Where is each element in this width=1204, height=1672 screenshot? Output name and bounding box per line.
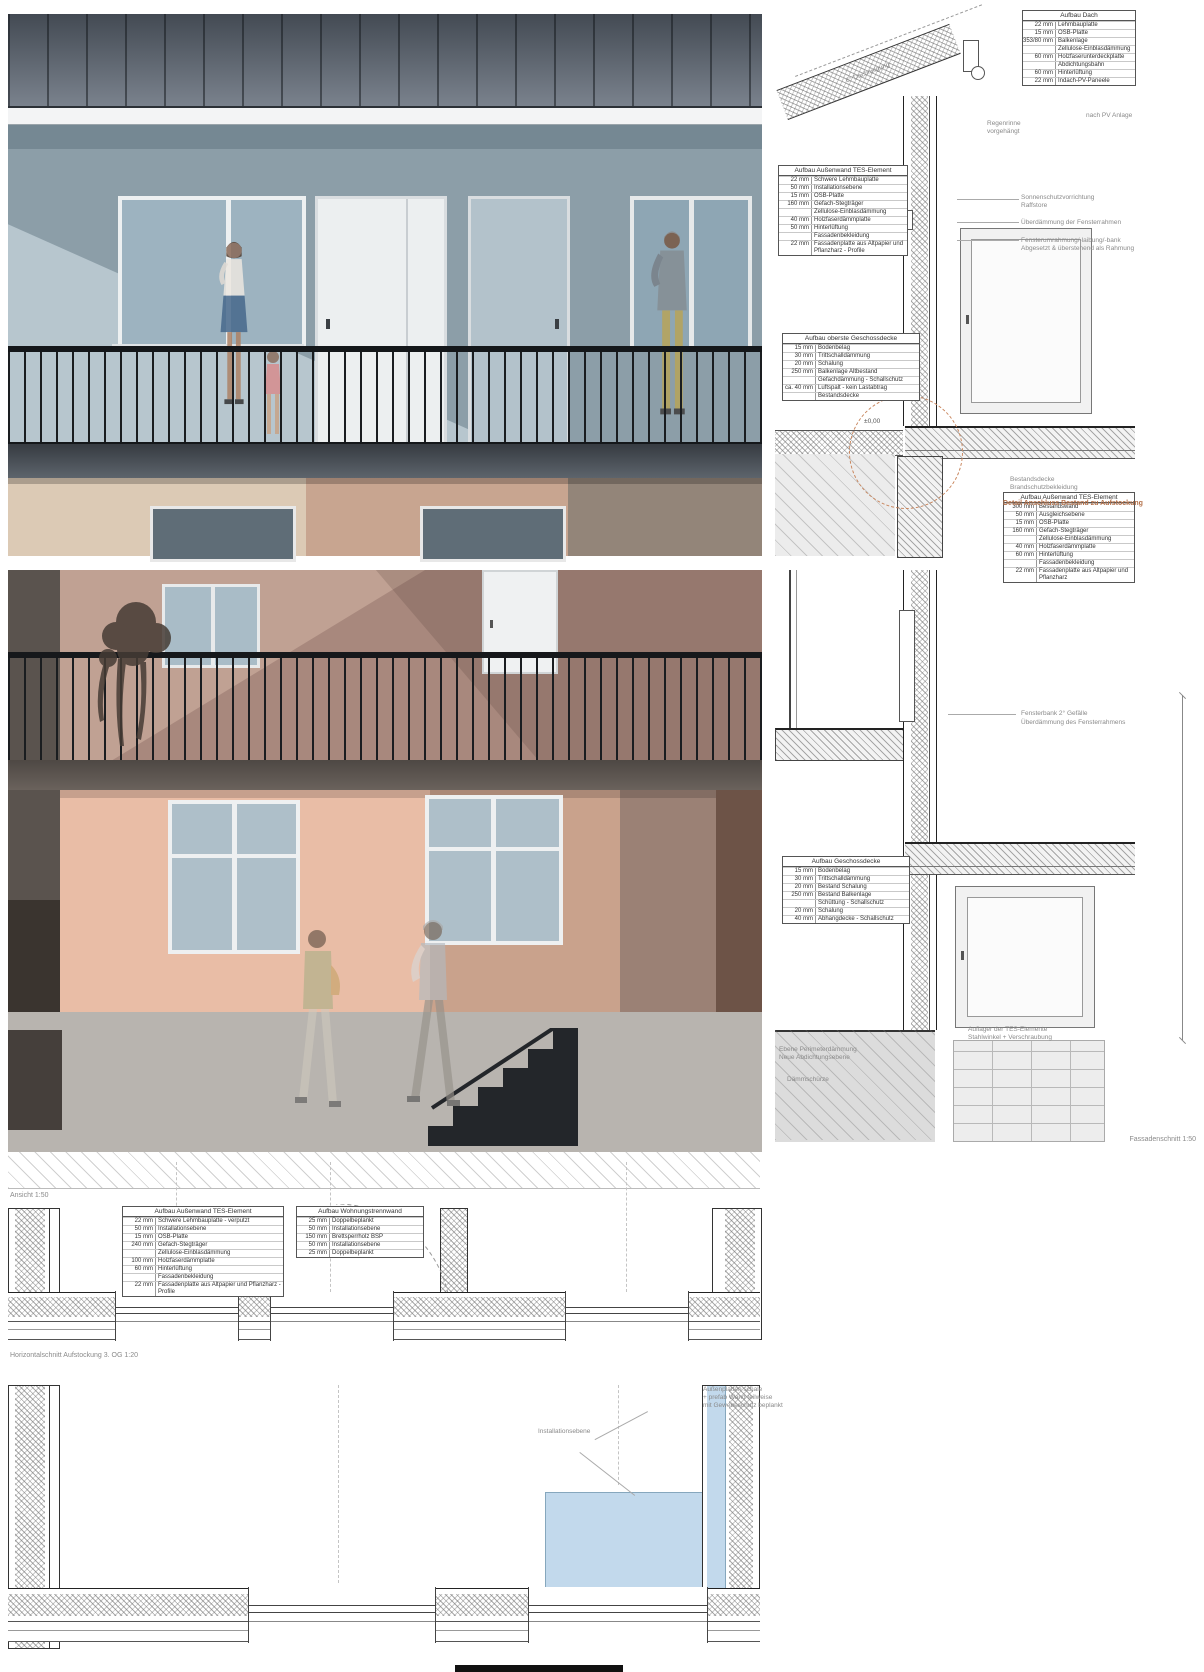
table-row: Zellulose-Einblasdämmung bbox=[1023, 45, 1135, 53]
facade-wall-below bbox=[8, 478, 762, 556]
table-row: 160 mmGefach-Stegträger bbox=[779, 200, 907, 208]
table-row: 20 mmSchalung bbox=[783, 360, 919, 368]
outer-panel-label-1: Außenplatten schale bbox=[703, 1386, 762, 1394]
table-title: Aufbau Dach bbox=[1023, 11, 1135, 21]
table-row: 15 mmOSB-Platte bbox=[1004, 519, 1134, 527]
plan-wall-strip bbox=[8, 1588, 760, 1642]
dark-door-right bbox=[716, 790, 762, 1012]
table-title: Aufbau Geschossdecke bbox=[783, 857, 909, 867]
window-handle bbox=[966, 315, 969, 324]
plan-window bbox=[270, 1291, 394, 1341]
plinth bbox=[8, 1012, 762, 1152]
window-surround-label-2: Abgesetzt & überstehend als Rahmung bbox=[1021, 245, 1134, 253]
caption-ansicht: Ansicht 1:50 bbox=[10, 1192, 49, 1199]
table-row: 40 mmHolzfaserdämmplatte bbox=[1004, 543, 1134, 551]
table-row: Schüttung - Schallschutz bbox=[783, 899, 909, 907]
outer-panel-label-3: mit Gewebeschutz beplankt bbox=[703, 1402, 783, 1410]
balcony-slab bbox=[8, 444, 762, 478]
window-mullion bbox=[491, 799, 496, 941]
window-element-section bbox=[960, 228, 1092, 414]
window-transom bbox=[429, 847, 559, 851]
window-surround-label-1: Fensterumrahmung/-laibung/-bank bbox=[1021, 237, 1121, 245]
table-row: 240 mmGefach-Stegträger bbox=[123, 1241, 283, 1249]
table-row: 50 mmInstallationsebene bbox=[297, 1241, 423, 1249]
table-row: 50 mmAusgleichsebene bbox=[1004, 511, 1134, 519]
roof-standing-seam bbox=[8, 14, 762, 108]
door-handle bbox=[961, 951, 964, 960]
table-title: Aufbau Wohnungstrennwand bbox=[297, 1207, 423, 1217]
table-row: 15 mmBodenbelag bbox=[783, 344, 919, 352]
table-row: 25 mmDoppelbeplankt bbox=[297, 1217, 423, 1225]
table-row: 250 mmBestand Balkenlage bbox=[783, 891, 909, 899]
table-row: 60 mmHinterlüftung bbox=[1004, 551, 1134, 559]
table-row: 100 mmHolzfaserdämmplatte bbox=[123, 1257, 283, 1265]
ground-hatch-strip bbox=[8, 1152, 760, 1189]
installation-layer-label: Installationsebene bbox=[538, 1428, 590, 1436]
axis-line bbox=[626, 1162, 627, 1292]
table-row: Gefachdämmung - Schallschutz bbox=[783, 376, 919, 384]
table-row: 15 mmOSB-Platte bbox=[123, 1233, 283, 1241]
plan-window bbox=[528, 1587, 708, 1643]
table-geschossdecke: Aufbau Geschossdecke15 mmBodenbelag30 mm… bbox=[782, 856, 910, 924]
elevation-upper bbox=[8, 14, 762, 556]
detail-marker-circle bbox=[849, 395, 963, 509]
window-sill-label-1: Fensterbank 2° Gefälle bbox=[1021, 710, 1088, 718]
table-oberste-geschossdecke: Aufbau oberste Geschossdecke15 mmBodenbe… bbox=[782, 333, 920, 401]
elevation-lower bbox=[8, 570, 762, 1152]
outer-panel-label-2: + prefab Wand teilweise bbox=[703, 1394, 772, 1402]
table-row: 353/80 mmBalkenlage bbox=[1023, 37, 1135, 45]
sheet-edge-bar bbox=[455, 1665, 623, 1672]
table-row: 30 mmTrittschalldämmung bbox=[783, 352, 919, 360]
leader-line bbox=[957, 199, 1019, 200]
existing-slab-label: Bestandsdecke bbox=[1010, 476, 1054, 484]
table-row: Zellulose-Einblasdämmung bbox=[779, 208, 907, 216]
wall-board-line bbox=[929, 96, 930, 426]
wall-segment-grey bbox=[568, 478, 762, 556]
table-row: 15 mmOSB-Platte bbox=[779, 192, 907, 200]
window-sill-label-2: Überdämmung des Fensterrahmens bbox=[1021, 719, 1125, 727]
wall-board-line bbox=[929, 570, 930, 1030]
window-section-block bbox=[899, 610, 915, 722]
table-row: 30 mmTrittschalldämmung bbox=[783, 875, 909, 883]
table-aufbau-dach: Aufbau Dach22 mmLehmbauplatte15 mmOSB-Pl… bbox=[1022, 10, 1136, 86]
table-row: 50 mmInstallationsebene bbox=[297, 1225, 423, 1233]
table-row: 22 mmIndach-PV-Paneele bbox=[1023, 77, 1135, 85]
table-row: 60 mmHinterlüftung bbox=[1023, 69, 1135, 77]
plan-window bbox=[115, 1291, 239, 1341]
table-aussenwand-tes: Aufbau Außenwand TES-Element22 mmSchwere… bbox=[778, 165, 908, 256]
axis-line bbox=[338, 1385, 339, 1583]
pv-label: nach PV Anlage bbox=[1086, 112, 1132, 120]
table-aussenwand-plan: Aufbau Außenwand TES-Element22 mmSchwere… bbox=[122, 1206, 284, 1297]
table-row: Zellulose-Einblasdämmung bbox=[123, 1249, 283, 1257]
table-row: Zellulose-Einblasdämmung bbox=[1004, 535, 1134, 543]
table-row: 60 mmHinterlüftung bbox=[123, 1265, 283, 1273]
fire-protection-label: Brandschutzbekleidung bbox=[1010, 484, 1078, 492]
balcony-slab-lower bbox=[8, 760, 762, 790]
table-title: Aufbau Außenwand TES-Element bbox=[779, 166, 907, 176]
floor-slab-mid bbox=[905, 842, 1135, 875]
perimeter-label-2: Neue Abdichtungsebene bbox=[779, 1054, 850, 1062]
gutter-profile bbox=[971, 66, 985, 80]
plan-wall-strip bbox=[8, 1292, 760, 1340]
caption-horizontalschnitt: Horizontalschnitt Aufstockung 3. OG 1:20 bbox=[10, 1352, 138, 1359]
table-row: 22 mmFassadenplatte aus Altpapier und Pf… bbox=[1004, 567, 1134, 582]
table-row: 22 mmSchwere Lehmbauplatte bbox=[779, 176, 907, 184]
window-inner-panel bbox=[971, 239, 1081, 403]
window-mullion bbox=[232, 804, 237, 950]
table-row: ca. 40 mmLuftspalt - kein Lastabtrag bbox=[783, 384, 919, 392]
table-row: 250 mmBalkenlage Altbestand bbox=[783, 368, 919, 376]
window-lower-left bbox=[168, 800, 300, 954]
drawing-sheet: Aufbau Dach22 mmLehmbauplatte15 mmOSB-Pl… bbox=[0, 0, 1204, 1672]
section-detail-upper bbox=[775, 14, 1195, 570]
table-row: 22 mmSchwere Lehmbauplatte - verputzt bbox=[123, 1217, 283, 1225]
skirt-insulation-label: Dämmschürze bbox=[787, 1076, 829, 1084]
plan-window bbox=[565, 1291, 689, 1341]
level-mark: ±0,00 bbox=[864, 418, 880, 426]
table-row: 22 mmFassadenplatte aus Altpapier und Pf… bbox=[123, 1281, 283, 1296]
table-row: 50 mmInstallationsebene bbox=[779, 184, 907, 192]
table-wohnungstrennwand: Aufbau Wohnungstrennwand25 mmDoppelbepla… bbox=[296, 1206, 424, 1258]
slab-layer-line bbox=[905, 866, 1135, 867]
gutter-label-1: Regenrinne bbox=[987, 120, 1021, 128]
person-walking-man bbox=[393, 918, 473, 1126]
caption-fassadenschnitt: Fassadenschnitt 1:50 bbox=[1016, 1136, 1196, 1143]
leader-line bbox=[948, 714, 1016, 715]
plan-detail-2 bbox=[8, 1385, 760, 1647]
table-row: Fassadenbekleidung bbox=[779, 232, 907, 240]
axis-line bbox=[618, 1385, 619, 1485]
table-row: 160 mmGefach-Stegträger bbox=[1004, 527, 1134, 535]
table-row: 15 mmOSB-Platte bbox=[1023, 29, 1135, 37]
table-row: 50 mmInstallationsebene bbox=[123, 1225, 283, 1233]
door-handle bbox=[326, 319, 330, 329]
table-row: 50 mmHinterlüftung bbox=[779, 224, 907, 232]
dimension-line-vertical bbox=[1182, 695, 1183, 1040]
slab-shadow bbox=[60, 790, 762, 798]
railing-section-line2 bbox=[796, 570, 797, 728]
sunshade-label-2: Raffstore bbox=[1021, 202, 1047, 210]
table-row: 22 mmFassadenplatte aus Altpapier und Pf… bbox=[779, 240, 907, 255]
table-row: 22 mmLehmbauplatte bbox=[1023, 21, 1135, 29]
window-below-mid bbox=[420, 506, 566, 562]
support-label-2: Stahlwinkel + Verschraubung bbox=[968, 1034, 1052, 1042]
table-row: 150 mmBrettsperrholz BSP bbox=[297, 1233, 423, 1241]
support-label-1: Auflager der TES-Elemente bbox=[968, 1026, 1047, 1034]
leader-line bbox=[957, 240, 1019, 241]
table-title: Aufbau oberste Geschossdecke bbox=[783, 334, 919, 344]
table-row: Bestandsdecke bbox=[783, 392, 919, 400]
detail-callout-label: Detail Anschluss Bestand zu Aufstockung bbox=[1003, 500, 1143, 508]
table-row: 25 mmDoppelbeplankt bbox=[297, 1249, 423, 1257]
table-title: Aufbau Außenwand TES-Element bbox=[123, 1207, 283, 1217]
existing-cellar-blocks bbox=[953, 1040, 1105, 1142]
table-row: 40 mmHolzfaserdämmplatte bbox=[779, 216, 907, 224]
balcony-railing bbox=[8, 346, 762, 444]
plinth-opening-dark bbox=[8, 1030, 62, 1130]
door-handle bbox=[490, 620, 493, 628]
gutter-label-2: vorgehängt bbox=[987, 128, 1020, 136]
perimeter-label-1: Ebene Perimeterdämmung bbox=[779, 1046, 857, 1054]
table-row: Fassadenbekleidung bbox=[123, 1273, 283, 1281]
plan-wall-insulation bbox=[729, 1386, 753, 1589]
table-row: Abdichtungsbahn bbox=[1023, 61, 1135, 69]
window-below-left bbox=[150, 506, 296, 562]
table-row: 15 mmBodenbelag bbox=[783, 867, 909, 875]
plan-window bbox=[248, 1587, 436, 1643]
plan-wall-right-blue bbox=[702, 1385, 760, 1590]
door-inner-panel bbox=[967, 897, 1083, 1017]
table-row: 60 mmHolzfaserunterdeckplatte bbox=[1023, 53, 1135, 61]
slab-shadow bbox=[8, 478, 762, 484]
railing-section-line bbox=[789, 570, 791, 728]
door-handle bbox=[555, 319, 559, 329]
handrail bbox=[8, 346, 762, 352]
person-walking-woman bbox=[285, 925, 355, 1125]
sunshade-label-1: Sonnenschutzvorrichtung bbox=[1021, 194, 1094, 202]
leader-line bbox=[957, 222, 1019, 223]
table-row: Fassadenbekleidung bbox=[1004, 559, 1134, 567]
wall-blue-core bbox=[707, 1386, 726, 1589]
fascia-band bbox=[8, 108, 762, 125]
table-row: 20 mmSchalung bbox=[783, 907, 909, 915]
door-element-section bbox=[955, 886, 1095, 1028]
frame-insulation-label: Überdämmung der Fensterrahmen bbox=[1021, 219, 1121, 227]
plant-silhouette bbox=[78, 588, 198, 758]
window-transom bbox=[172, 854, 296, 858]
table-row: 20 mmBestand Schalung bbox=[783, 883, 909, 891]
table-row: 40 mmAbhangdecke - Schallschutz bbox=[783, 915, 909, 923]
